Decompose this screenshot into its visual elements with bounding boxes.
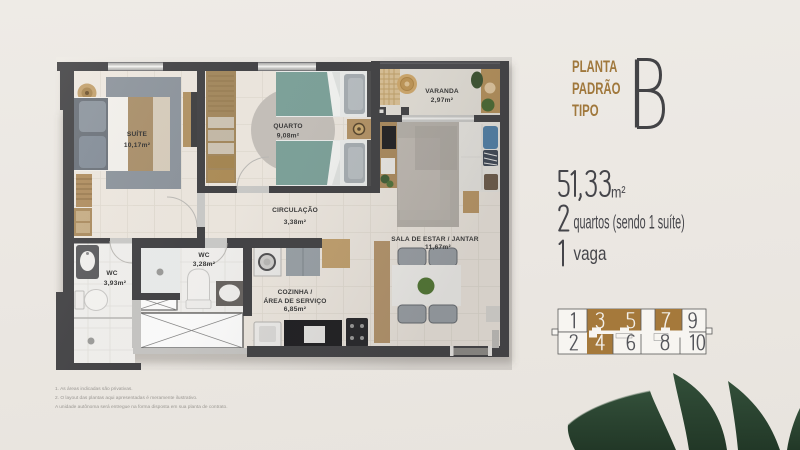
svg-text:9,08m²: 9,08m² — [277, 133, 300, 140]
svg-text:2. O layout das plantas aqui a: 2. O layout das plantas aqui apresentada… — [55, 395, 197, 401]
svg-text:COZINHA /: COZINHA / — [278, 289, 313, 296]
svg-text:A unidade autônoma será entreg: A unidade autônoma será entregue na form… — [55, 404, 228, 410]
svg-text:WC: WC — [106, 270, 117, 277]
svg-text:11,67m²: 11,67m² — [425, 244, 451, 251]
svg-text:SUÍTE: SUÍTE — [127, 129, 148, 138]
svg-text:2,97m²: 2,97m² — [431, 97, 454, 104]
svg-text:CIRCULAÇÃO: CIRCULAÇÃO — [272, 205, 318, 214]
svg-text:QUARTO: QUARTO — [273, 123, 302, 130]
svg-text:3,28m²: 3,28m² — [193, 261, 216, 268]
svg-text:SALA DE ESTAR / JANTAR: SALA DE ESTAR / JANTAR — [391, 236, 479, 243]
svg-text:6,85m²: 6,85m² — [284, 306, 307, 313]
svg-text:VARANDA: VARANDA — [425, 88, 459, 95]
svg-text:vaga: vaga — [574, 242, 607, 264]
svg-text:ÁREA DE SERVIÇO: ÁREA DE SERVIÇO — [263, 296, 326, 305]
svg-text:3,93m²: 3,93m² — [104, 280, 127, 287]
svg-text:1. As áreas indicadas são priv: 1. As áreas indicadas são privativas. — [55, 386, 133, 392]
svg-text:m²: m² — [611, 184, 626, 202]
svg-text:3,38m²: 3,38m² — [284, 219, 307, 226]
svg-text:10,17m²: 10,17m² — [124, 142, 151, 149]
svg-text:WC: WC — [198, 252, 209, 259]
svg-text:quartos (sendo 1 suíte): quartos (sendo 1 suíte) — [574, 213, 685, 234]
